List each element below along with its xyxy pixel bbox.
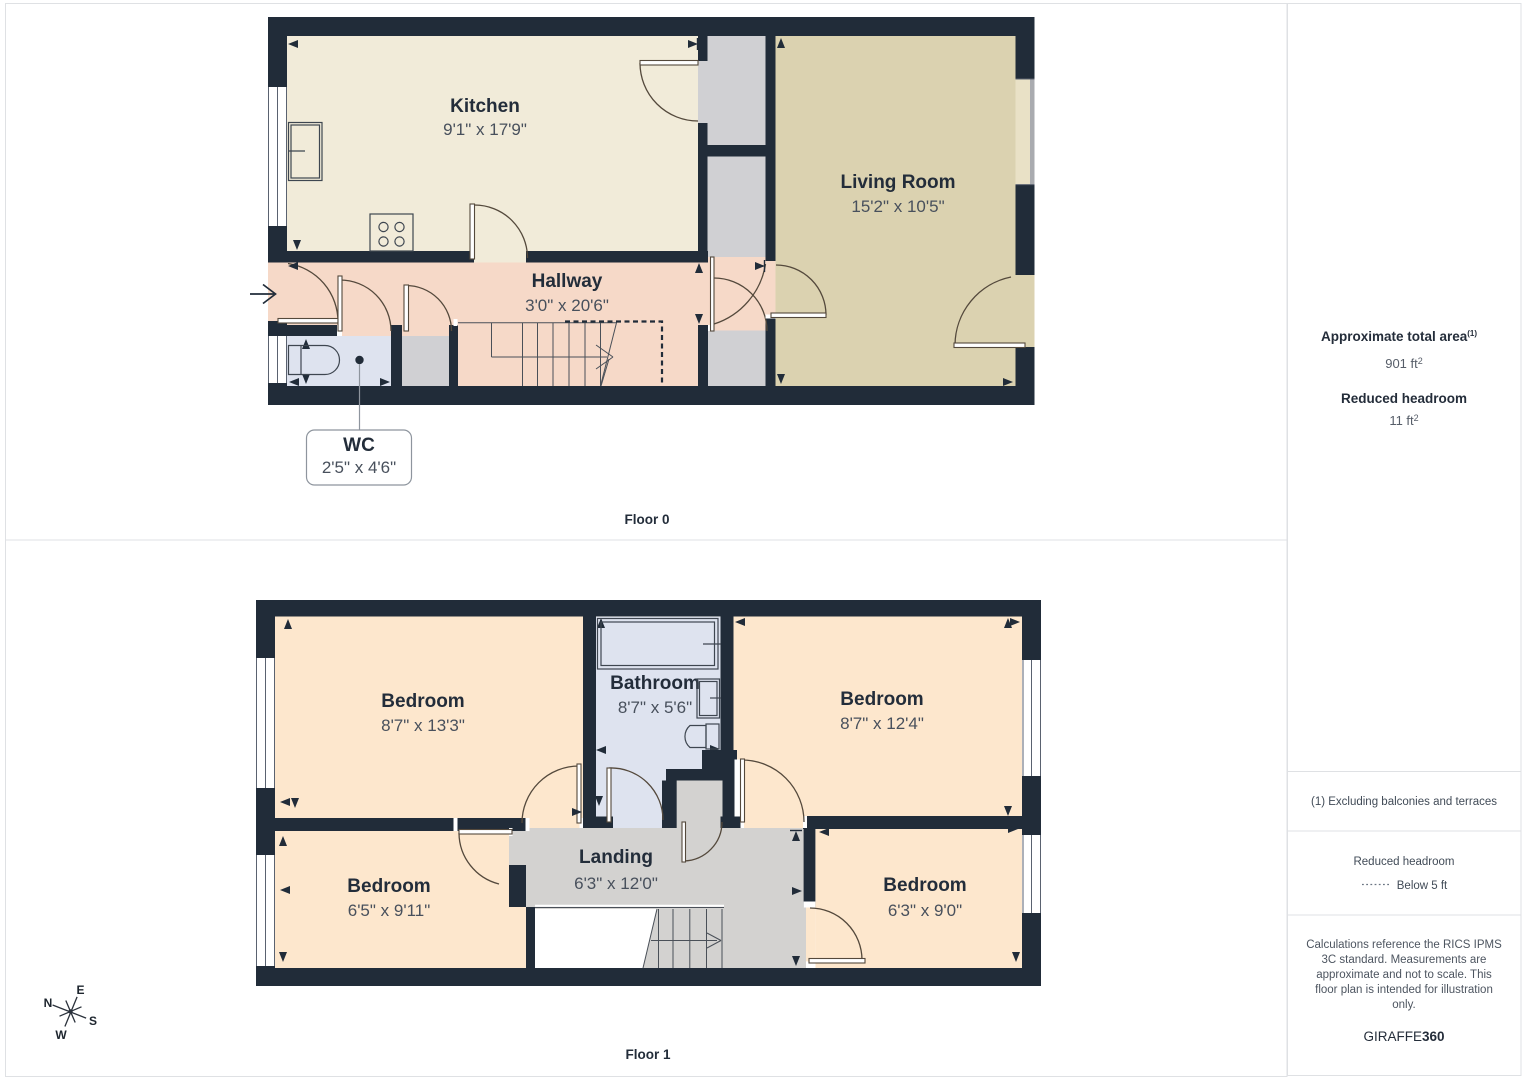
svg-text:Reduced headroom: Reduced headroom (1353, 856, 1454, 868)
svg-text:WC: WC (343, 435, 375, 456)
svg-text:8'7" x 5'6": 8'7" x 5'6" (618, 698, 692, 717)
svg-text:3C standard. Measurements are: 3C standard. Measurements are (1322, 954, 1487, 966)
svg-text:Floor 1: Floor 1 (625, 1047, 670, 1062)
svg-text:S: S (89, 1014, 97, 1028)
svg-text:Bedroom: Bedroom (840, 689, 923, 710)
svg-text:only.: only. (1392, 999, 1415, 1011)
svg-text:8'7" x 12'4": 8'7" x 12'4" (840, 714, 924, 733)
svg-text:N: N (44, 996, 53, 1010)
svg-text:8'7" x 13'3": 8'7" x 13'3" (381, 716, 465, 735)
svg-text:Bedroom: Bedroom (347, 876, 430, 897)
svg-text:Hallway: Hallway (532, 271, 603, 292)
svg-text:6'3" x 12'0": 6'3" x 12'0" (574, 874, 658, 893)
svg-text:Landing: Landing (579, 847, 653, 868)
svg-text:6'5" x 9'11": 6'5" x 9'11" (348, 901, 431, 920)
svg-text:W: W (55, 1028, 67, 1042)
svg-text:Bedroom: Bedroom (883, 875, 966, 896)
svg-text:3'0" x 20'6": 3'0" x 20'6" (525, 296, 609, 315)
svg-text:Living Room: Living Room (840, 172, 955, 193)
svg-text:Bedroom: Bedroom (381, 691, 464, 712)
svg-text:Floor 0: Floor 0 (624, 512, 669, 527)
svg-text:Below 5 ft: Below 5 ft (1397, 880, 1448, 892)
svg-text:Kitchen: Kitchen (450, 96, 520, 117)
svg-text:Approximate total area(1): Approximate total area(1) (1321, 329, 1477, 344)
svg-text:9'1" x 17'9": 9'1" x 17'9" (443, 120, 527, 139)
svg-text:11 ft2: 11 ft2 (1389, 413, 1418, 428)
svg-text:GIRAFFE360: GIRAFFE360 (1363, 1029, 1444, 1044)
svg-text:approximate and not to scale.: approximate and not to scale. This (1316, 969, 1492, 981)
svg-text:901 ft2: 901 ft2 (1385, 356, 1423, 371)
svg-text:Bathroom: Bathroom (610, 673, 700, 694)
svg-text:2'5" x 4'6": 2'5" x 4'6" (322, 458, 396, 477)
svg-text:E: E (76, 983, 84, 997)
svg-text:Calculations reference the RIC: Calculations reference the RICS IPMS (1306, 939, 1502, 951)
svg-text:floor plan is intended for ill: floor plan is intended for illustration (1315, 984, 1493, 996)
svg-text:(1) Excluding balconies and te: (1) Excluding balconies and terraces (1311, 796, 1497, 808)
svg-text:15'2" x 10'5": 15'2" x 10'5" (851, 197, 944, 216)
svg-text:Reduced headroom: Reduced headroom (1341, 391, 1467, 406)
svg-text:6'3" x 9'0": 6'3" x 9'0" (888, 901, 962, 920)
